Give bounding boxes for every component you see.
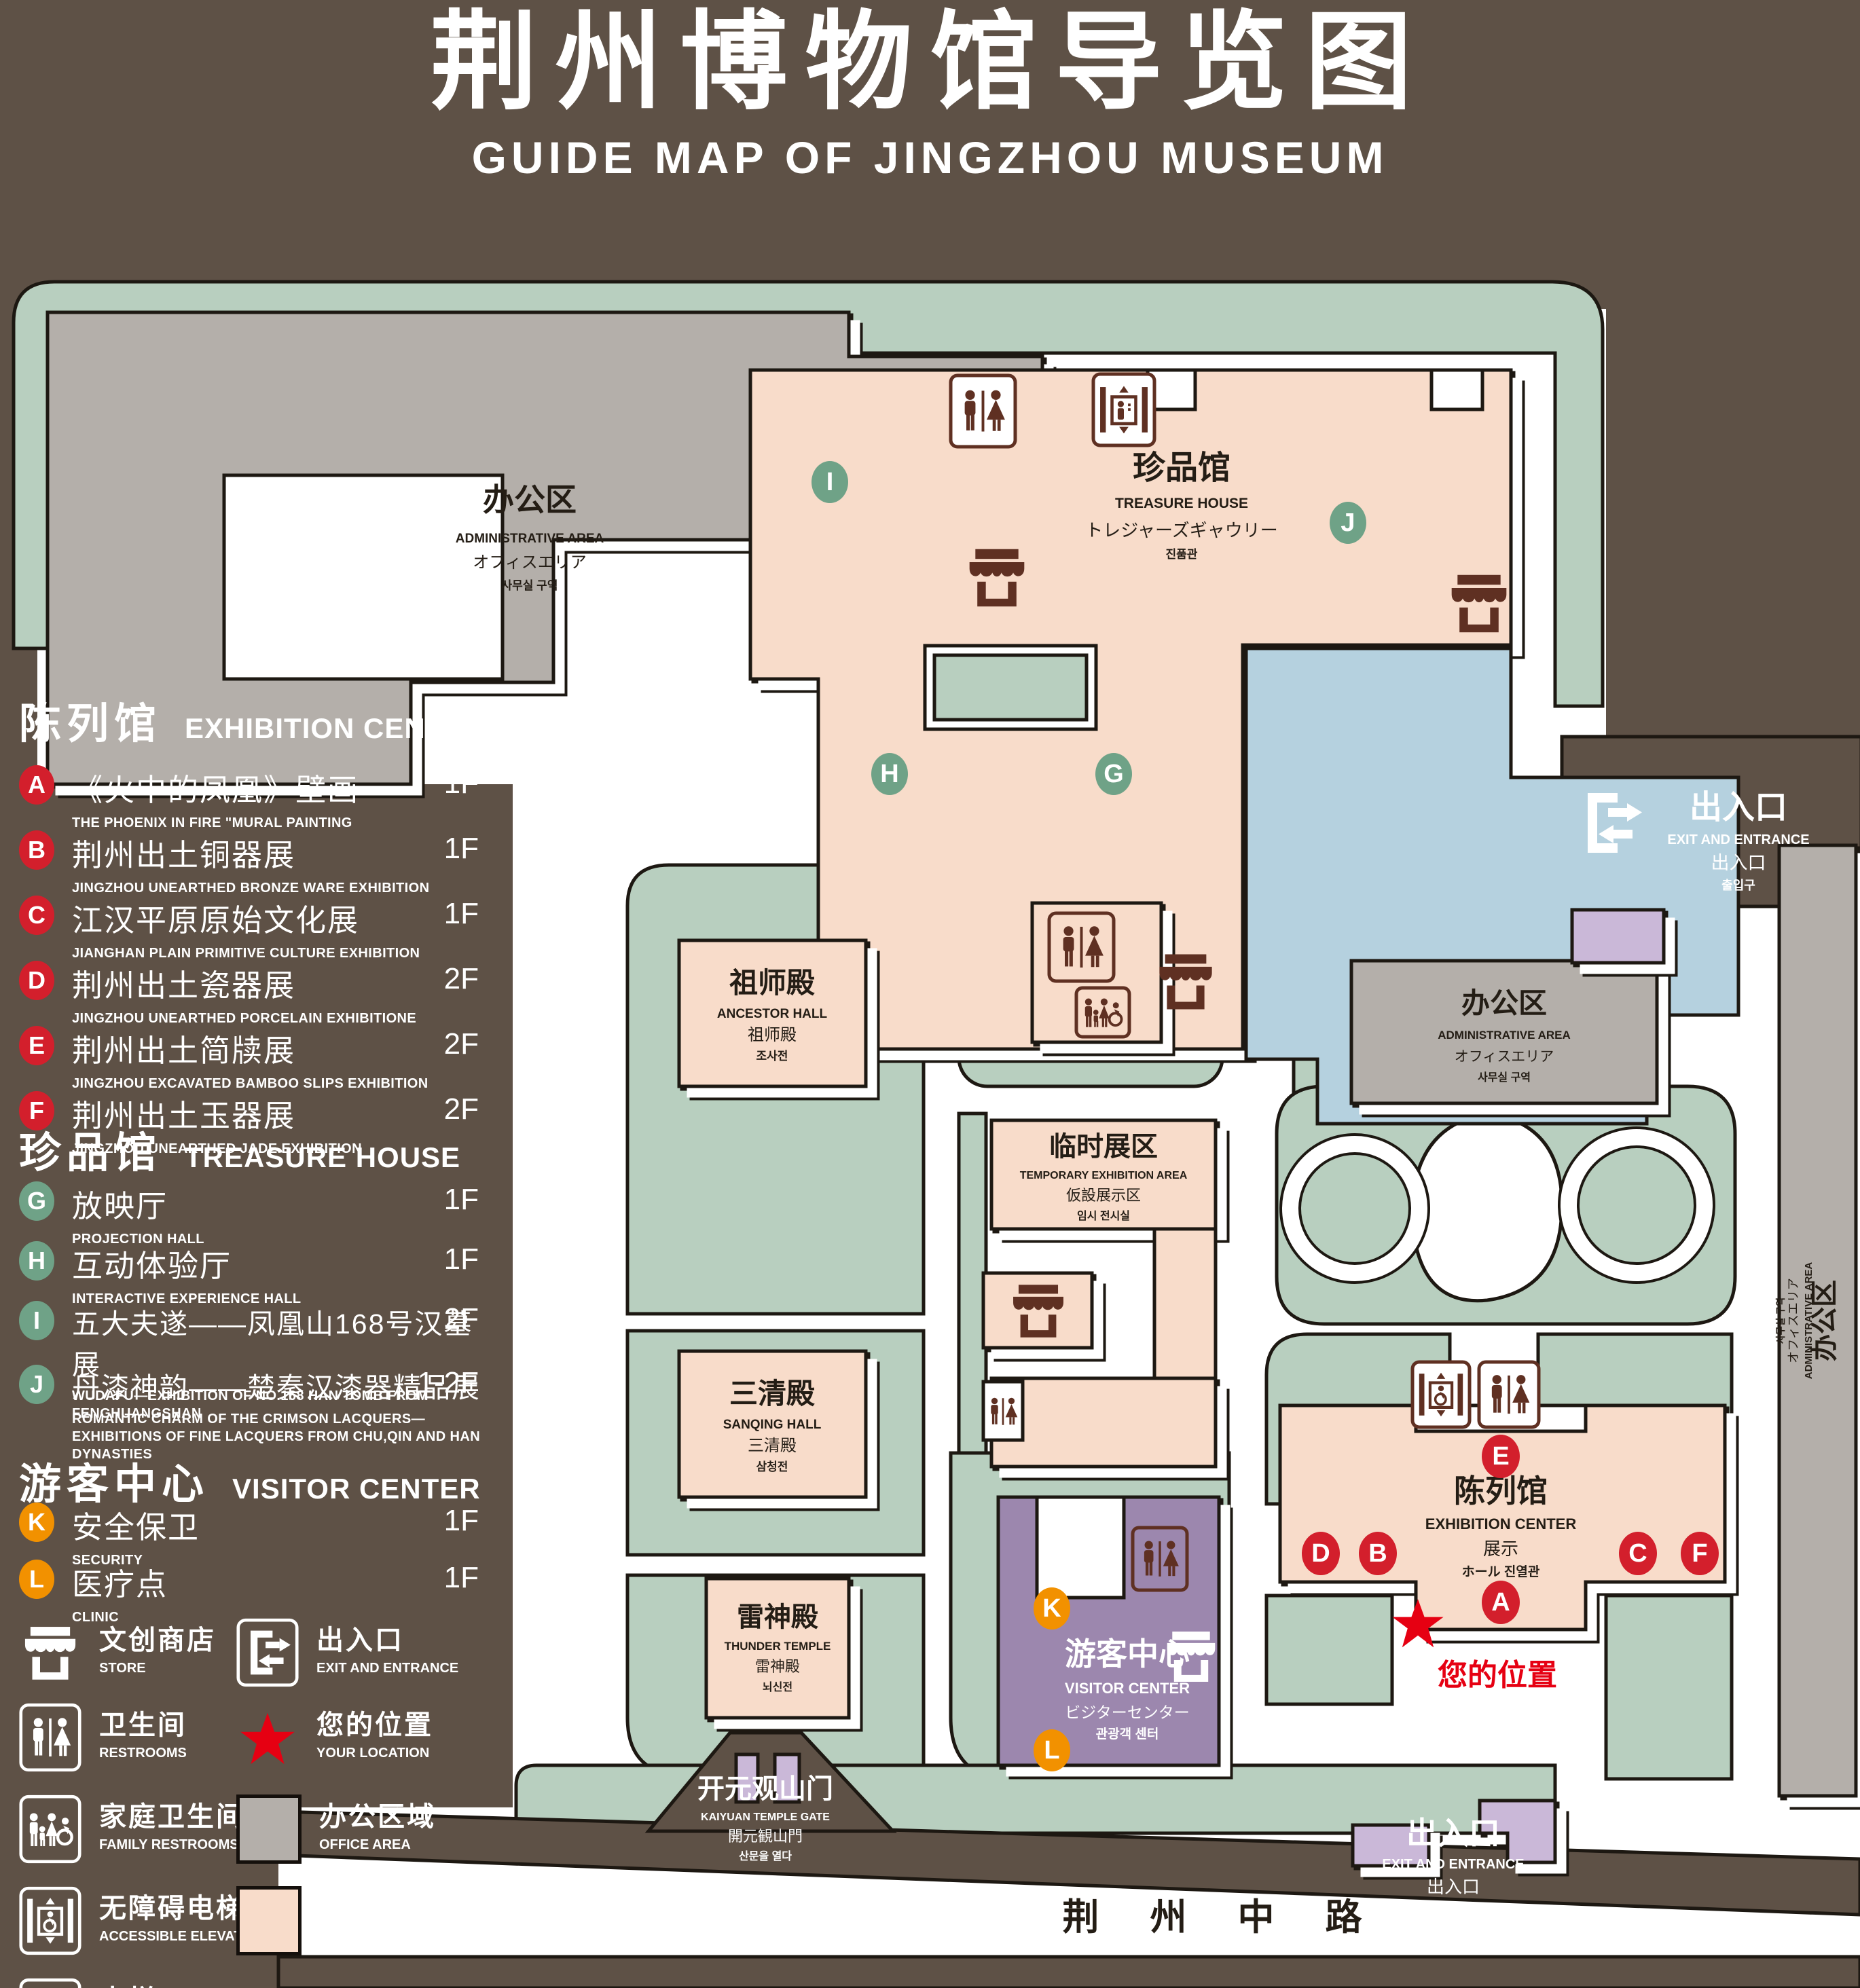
guide-map-page: 荆州博物馆导览图 GUIDE MAP OF JINGZHOU MUSEUM: [0, 0, 1860, 1988]
svg-text:임시 전시실: 임시 전시실: [1077, 1210, 1130, 1222]
svg-text:ANCESTOR HALL: ANCESTOR HALL: [717, 1007, 828, 1021]
legend-section-exhibition: 陈列馆 EXHIBITION CENTER: [19, 689, 485, 750]
family-restroom-icon: [19, 1794, 81, 1864]
your-location-star-icon: [236, 1703, 299, 1772]
marker-badge-E: E: [19, 1026, 54, 1065]
legend-symbol-restrooms: 卫生间RESTROOMS: [19, 1703, 187, 1772]
svg-text:TREASURE HOUSE: TREASURE HOUSE: [1115, 496, 1248, 511]
page-subtitle: GUIDE MAP OF JINGZHOU MUSEUM: [0, 132, 1860, 183]
marker-badge-A: A: [19, 765, 54, 805]
legend-section-treasure: 珍品馆 TREASURE HOUSE: [19, 1118, 460, 1179]
svg-text:ADMINISTRATIVE AREA: ADMINISTRATIVE AREA: [1803, 1262, 1815, 1380]
svg-text:A: A: [1491, 1588, 1510, 1617]
svg-text:사무실 구역: 사무실 구역: [1478, 1071, 1531, 1084]
svg-text:L: L: [1044, 1736, 1059, 1765]
marker-badge-K: K: [19, 1503, 54, 1542]
svg-text:삼청전: 삼청전: [756, 1460, 788, 1473]
marker-badge-G: G: [19, 1181, 54, 1221]
road-label: 荆 州 中 路: [1062, 1897, 1382, 1938]
legend-symbol-elevator: 电梯Elevator: [19, 1978, 158, 1988]
svg-text:出入口: 出入口: [1406, 1816, 1500, 1851]
legend-panel: 陈列馆 EXHIBITION CENTER A 《火中的凤凰》壁画 1F THE…: [19, 662, 491, 1988]
svg-text:祖师殿: 祖师殿: [748, 1026, 797, 1044]
legend-section-visitor: 游客中心 VISITOR CENTER: [19, 1450, 481, 1511]
marker-badge-J: J: [19, 1365, 54, 1404]
legend-item-E: E 荆州出土简牍展 2F JINGZHOU EXCAVATED BAMBOO S…: [19, 1026, 491, 1092]
svg-text:사무실 구역: 사무실 구역: [1775, 1297, 1786, 1344]
svg-text:開元観山門: 開元観山門: [728, 1828, 803, 1845]
legend-symbol-exit: 出入口EXIT AND ENTRANCE: [236, 1618, 458, 1687]
svg-text:THUNDER TEMPLE: THUNDER TEMPLE: [725, 1640, 831, 1653]
road-south-band: [278, 1957, 1860, 1988]
svg-text:출입구: 출입구: [1436, 1901, 1470, 1915]
svg-text:G: G: [1104, 760, 1124, 788]
svg-text:진품관: 진품관: [1166, 548, 1198, 561]
legend-item-L: L 医疗点 1F CLINIC: [19, 1560, 491, 1626]
elevator-icon: [19, 1978, 81, 1988]
restroom-icon: [19, 1703, 81, 1772]
svg-text:사무실 구역: 사무실 구역: [502, 579, 558, 592]
svg-text:산문을 열다: 산문을 열다: [739, 1850, 792, 1862]
legend-item-H: H 互动体验厅 1F INTERACTIVE EXPERIENCE HALL: [19, 1241, 491, 1308]
svg-text:조사전: 조사전: [756, 1050, 788, 1063]
restroom-icon: [1479, 1362, 1539, 1427]
svg-text:VISITOR CENTER: VISITOR CENTER: [1065, 1680, 1190, 1697]
svg-text:陈列馆: 陈列馆: [1454, 1473, 1548, 1509]
svg-text:办公区: 办公区: [1461, 987, 1547, 1019]
legend-symbol-your-location: 您的位置YOUR LOCATION: [236, 1703, 433, 1772]
marker-badge-I: I: [19, 1301, 54, 1340]
svg-text:珍品馆: 珍品馆: [1133, 450, 1230, 486]
svg-text:雷神殿: 雷神殿: [737, 1602, 818, 1632]
section-title-en: EXHIBITION CENTER: [185, 712, 485, 745]
north-gate-building: [1572, 910, 1664, 963]
page-header: 荆州博物馆导览图 GUIDE MAP OF JINGZHOU MUSEUM: [0, 0, 1860, 183]
svg-text:뇌신전: 뇌신전: [763, 1681, 792, 1693]
legend-item-D: D 荆州出土瓷器展 2F JINGZHOU UNEARTHED PORCELAI…: [19, 961, 491, 1027]
svg-text:ADMINISTRATIVE AREA: ADMINISTRATIVE AREA: [456, 532, 604, 546]
legend-item-G: G 放映厅 1F PROJECTION HALL: [19, 1181, 491, 1248]
svg-text:EXIT AND ENTRANCE: EXIT AND ENTRANCE: [1667, 832, 1809, 847]
accessible-elevator-icon: [1412, 1362, 1470, 1427]
svg-text:雷神殿: 雷神殿: [755, 1658, 800, 1675]
legend-item-B: B 荆州出土铜器展 1F JINGZHOU UNEARTHED BRONZE W…: [19, 830, 491, 897]
svg-text:J: J: [1341, 509, 1355, 537]
svg-text:SANQING HALL: SANQING HALL: [723, 1418, 822, 1432]
svg-text:临时展区: 临时展区: [1049, 1132, 1158, 1162]
svg-text:办公区: 办公区: [483, 482, 577, 517]
svg-text:出入口: 出入口: [1427, 1877, 1480, 1897]
marker-badge-D: D: [19, 961, 54, 1000]
treasure-courtyard-green: [934, 655, 1087, 720]
svg-text:三清殿: 三清殿: [748, 1437, 797, 1455]
svg-text:EXIT AND ENTRANCE: EXIT AND ENTRANCE: [1382, 1857, 1524, 1872]
svg-text:展示: 展示: [1483, 1539, 1518, 1559]
svg-text:三清殿: 三清殿: [729, 1378, 815, 1410]
legend-item-A: A 《火中的凤凰》壁画 1F THE PHOENIX IN FIRE "MURA…: [19, 765, 491, 832]
svg-text:オフィスエリア: オフィスエリア: [473, 553, 587, 572]
svg-text:ホール 진열관: ホール 진열관: [1462, 1564, 1540, 1579]
display-area-swatch: [236, 1886, 302, 1955]
svg-text:D: D: [1311, 1539, 1330, 1568]
svg-text:TEMPORARY EXHIBITION AREA: TEMPORARY EXHIBITION AREA: [1020, 1170, 1188, 1181]
office-area-swatch: [236, 1794, 302, 1864]
legend-item-C: C 江汉平原原始文化展 1F JIANGHAN PLAIN PRIMITIVE …: [19, 896, 491, 962]
marker-badge-H: H: [19, 1241, 54, 1281]
svg-text:H: H: [880, 760, 898, 788]
svg-text:仮設展示区: 仮設展示区: [1066, 1187, 1141, 1204]
exit-icon: [236, 1618, 299, 1687]
restroom-icon: [951, 375, 1015, 447]
legend-symbol-store: 文创商店STORE: [19, 1618, 216, 1687]
svg-text:B: B: [1368, 1539, 1387, 1568]
legend-symbol-display-area: 展示区域DISPLAY AREA: [236, 1886, 436, 1955]
legend-symbol-accessible-elevator: 无障碍电梯ACCESSIBLE ELEVATOR: [19, 1886, 262, 1955]
svg-text:开元观山门: 开元观山门: [697, 1774, 833, 1804]
legend-symbol-office-area: 办公区域OFFICE AREA: [236, 1794, 436, 1864]
store-icon: [19, 1618, 81, 1687]
svg-text:トレジャーズギャウリー: トレジャーズギャウリー: [1085, 520, 1277, 540]
svg-text:出入口: 出入口: [1711, 853, 1766, 873]
svg-text:F: F: [1692, 1539, 1707, 1568]
svg-text:E: E: [1492, 1442, 1509, 1471]
svg-text:出入口: 出入口: [1690, 790, 1787, 826]
marker-badge-C: C: [19, 896, 54, 935]
svg-text:オフィスエリア: オフィスエリア: [1787, 1278, 1800, 1363]
svg-text:祖师殿: 祖师殿: [729, 967, 815, 999]
svg-text:ビジターセンター: ビジターセンター: [1065, 1704, 1190, 1721]
page-title: 荆州博物馆导览图: [0, 7, 1860, 119]
svg-text:オフィスエリア: オフィスエリア: [1455, 1049, 1554, 1065]
legend-symbol-family-restrooms: 家庭卫生间FAMILY RESTROOMS: [19, 1794, 245, 1864]
accessible-elevator-icon: [19, 1886, 81, 1955]
svg-text:EXHIBITION CENTER: EXHIBITION CENTER: [1425, 1515, 1577, 1532]
marker-badge-B: B: [19, 830, 54, 870]
svg-text:ADMINISTRATIVE AREA: ADMINISTRATIVE AREA: [1438, 1029, 1571, 1042]
section-title-zh: 陈列馆: [19, 689, 162, 750]
svg-text:KAIYUAN TEMPLE GATE: KAIYUAN TEMPLE GATE: [701, 1811, 830, 1823]
your-location-label: 您的位置: [1438, 1659, 1557, 1692]
svg-text:C: C: [1628, 1539, 1647, 1568]
marker-badge-L: L: [19, 1560, 54, 1599]
legend-item-J: J 丹漆神韵——楚秦汉漆器精品展 1-2F ROMANTIC CHARM OF …: [19, 1365, 491, 1463]
svg-text:K: K: [1042, 1594, 1061, 1623]
svg-text:출입구: 출입구: [1721, 878, 1755, 892]
elevator-icon: [1093, 374, 1154, 445]
garden-pond: [1412, 1113, 1562, 1301]
svg-text:관광객 센터: 관광객 센터: [1096, 1727, 1159, 1742]
svg-text:I: I: [826, 468, 834, 496]
